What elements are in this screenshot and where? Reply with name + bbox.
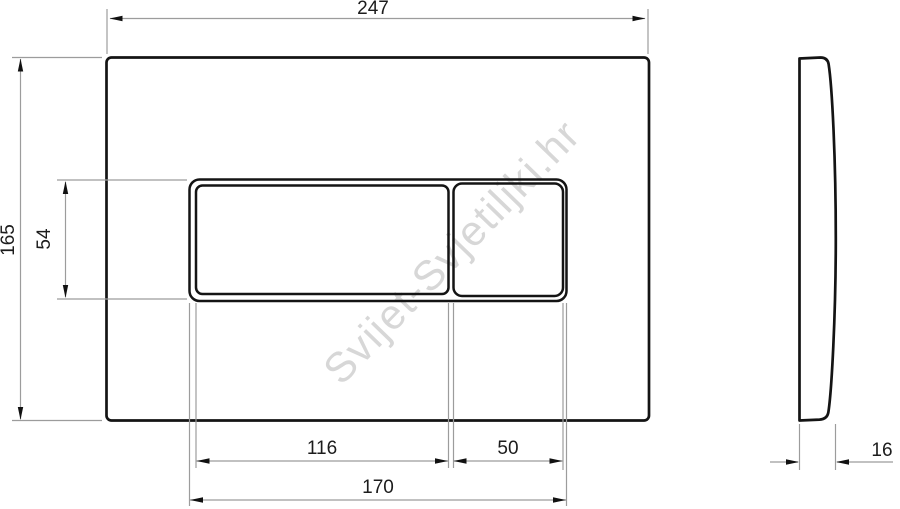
arrowhead-up-icon (63, 181, 68, 194)
dim-label-overall-height: 165 (0, 224, 19, 256)
dimension-button-height: 54 (34, 180, 187, 299)
dimension-overall-width: 247 (107, 0, 648, 54)
front-view (107, 58, 650, 421)
bottom-extension-lines (190, 303, 567, 506)
dimension-large-button-width: 116 (197, 438, 449, 464)
dim-label-button-area-width: 170 (362, 477, 394, 498)
drawing-canvas: 247 165 54 (0, 0, 900, 509)
dim-label-large-button-width: 116 (307, 438, 337, 459)
arrowhead-left-icon (454, 458, 467, 463)
small-flush-button (454, 184, 564, 297)
plate-side-profile (800, 58, 836, 421)
arrowhead-left-icon (197, 458, 210, 463)
dimension-small-button-width: 50 (454, 438, 563, 464)
button-frame-outline (190, 180, 567, 302)
arrowhead-right-icon (786, 459, 799, 464)
side-view (800, 58, 836, 421)
dim-label-small-button-width: 50 (497, 438, 518, 459)
arrowhead-up-icon (18, 59, 23, 72)
large-flush-button (196, 186, 449, 295)
arrowhead-right-icon (553, 497, 566, 502)
dim-label-thickness: 16 (871, 440, 892, 461)
dim-label-overall-width: 247 (357, 0, 389, 19)
arrowhead-left-icon (836, 459, 849, 464)
arrowhead-right-icon (435, 458, 448, 463)
arrowhead-down-icon (63, 285, 68, 298)
technical-drawing-page: Svijet-Svjetiljki.hr 247 (0, 0, 900, 509)
dimension-thickness: 16 (770, 424, 893, 470)
arrowhead-left-icon (110, 16, 123, 21)
arrowhead-down-icon (18, 407, 23, 420)
arrowhead-left-icon (190, 497, 203, 502)
dimension-button-area-width: 170 (190, 477, 566, 503)
arrowhead-right-icon (633, 16, 646, 21)
arrowhead-right-icon (550, 458, 563, 463)
dim-label-button-height: 54 (34, 228, 55, 250)
